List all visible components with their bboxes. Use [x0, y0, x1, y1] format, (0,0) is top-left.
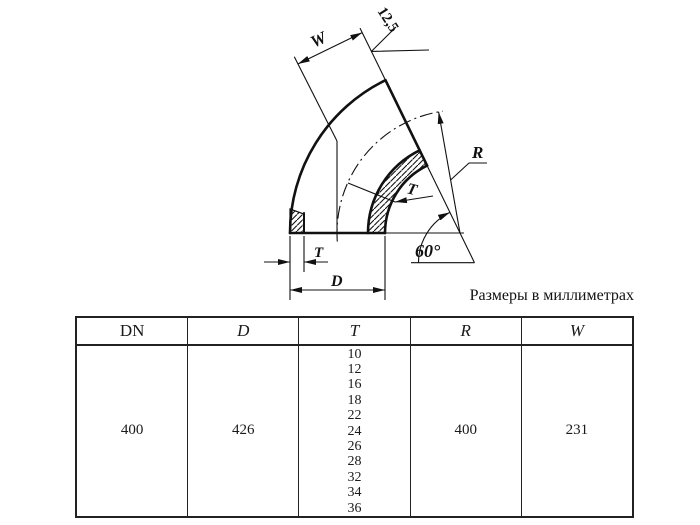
t-value: 34: [348, 485, 362, 500]
header-t: T: [299, 318, 410, 344]
cell-dn: 400: [77, 346, 188, 516]
t-value: 24: [348, 424, 362, 439]
w-extension-line: [294, 57, 337, 141]
table-header-row: DN D T R W: [77, 318, 632, 346]
header-d: D: [188, 318, 299, 344]
cell-r: 400: [411, 346, 522, 516]
t-value: 32: [348, 470, 362, 485]
label-w: W: [307, 27, 331, 52]
cell-t-values: 10 12 16 18 22 24 26 28 32 34 36: [299, 346, 410, 516]
t-value: 12: [348, 362, 362, 377]
r-radius-line: [439, 112, 460, 233]
dimensions-table: DN D T R W 400 426 10 12 16 18 22 24 26 …: [75, 316, 634, 518]
table-data-row: 400 426 10 12 16 18 22 24 26 28 32 34 36…: [77, 346, 632, 516]
t-value: 26: [348, 439, 362, 454]
label-radius: R: [471, 143, 483, 162]
label-roughness: 12,5: [374, 4, 402, 35]
t-value: 16: [348, 377, 362, 392]
t-value: 10: [348, 347, 362, 362]
cell-w: 231: [522, 346, 632, 516]
header-r: R: [411, 318, 522, 344]
t-value: 22: [348, 408, 362, 423]
header-w: W: [522, 318, 632, 344]
w-dimension-line: [298, 33, 362, 64]
label-wall-lower: T: [314, 245, 324, 261]
r-leader-line: [451, 163, 487, 180]
label-angle: 60°: [415, 241, 441, 261]
label-wall-upper: T: [405, 180, 420, 199]
t-value: 28: [348, 454, 362, 469]
header-dn: DN: [77, 318, 188, 344]
drawing-sheet: W 12,5 R T 60° T D Размеры в миллиметрах…: [0, 0, 700, 525]
units-caption: Размеры в миллиметрах: [234, 287, 634, 305]
t-value: 18: [348, 393, 362, 408]
t-value: 36: [348, 501, 362, 516]
roughness-mark: [371, 27, 429, 51]
elbow-outline: [290, 80, 427, 233]
cell-d: 426: [188, 346, 299, 516]
elbow-drawing: W 12,5 R T 60° T D: [0, 0, 700, 312]
end-face-extension-up: [360, 28, 386, 80]
